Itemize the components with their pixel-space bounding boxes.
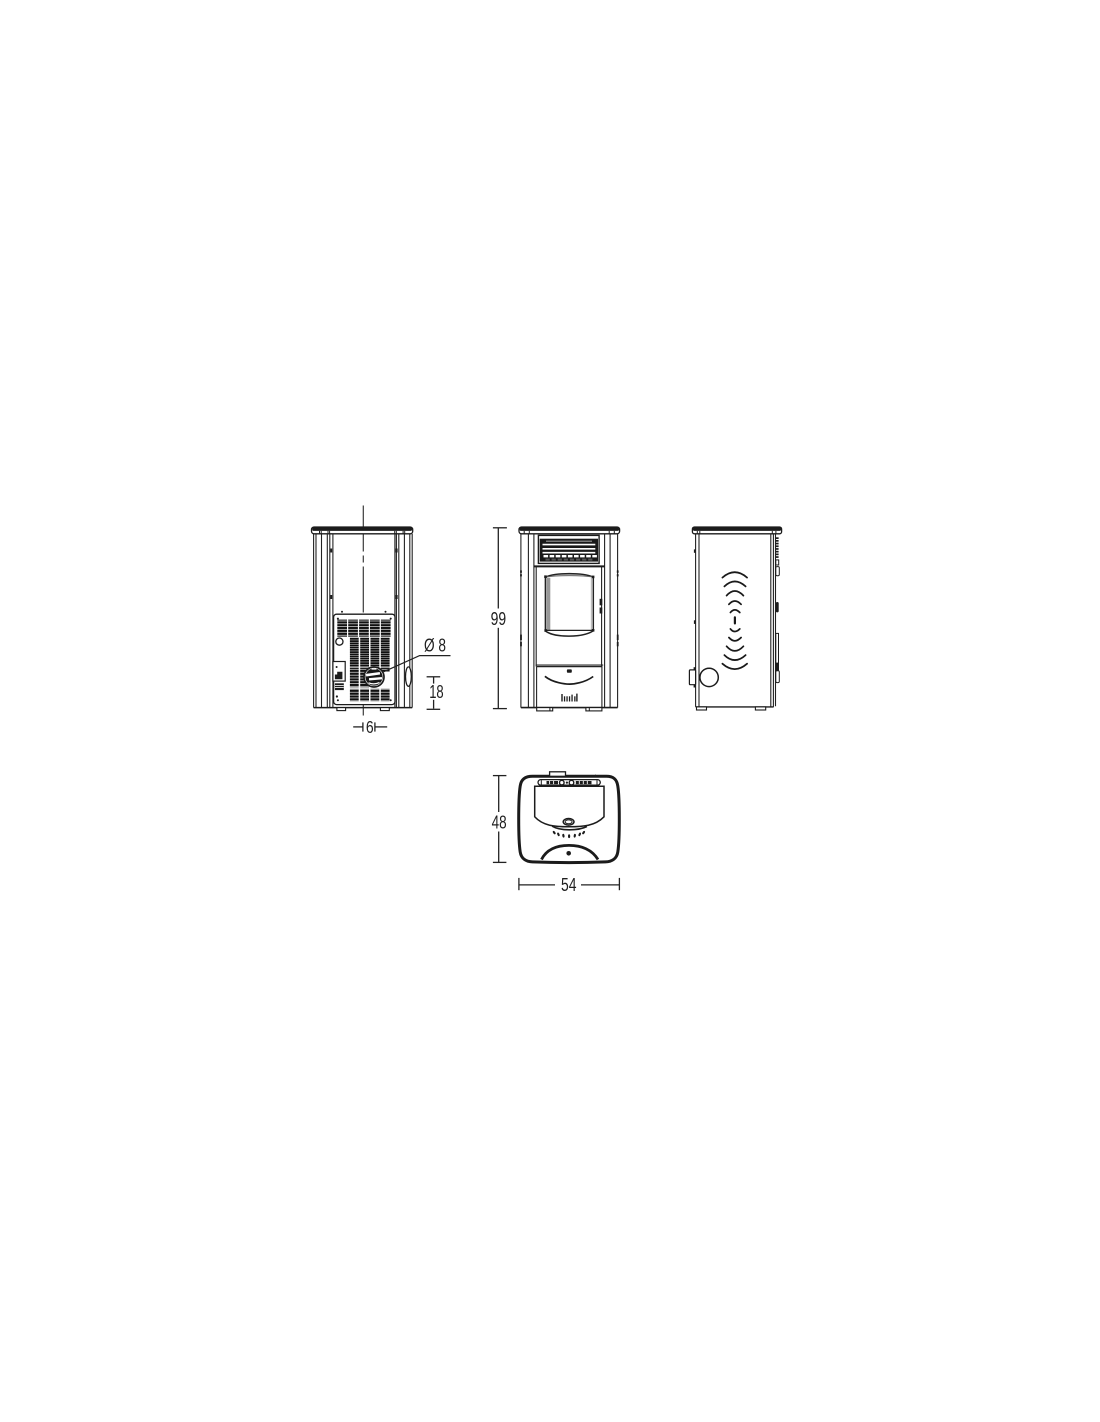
svg-text:18: 18 — [429, 682, 444, 702]
svg-text:54: 54 — [561, 875, 577, 895]
svg-text:Ø 8: Ø 8 — [424, 635, 446, 655]
svg-text:99: 99 — [491, 609, 507, 629]
svg-text:6: 6 — [366, 717, 374, 737]
svg-text:48: 48 — [492, 813, 507, 833]
